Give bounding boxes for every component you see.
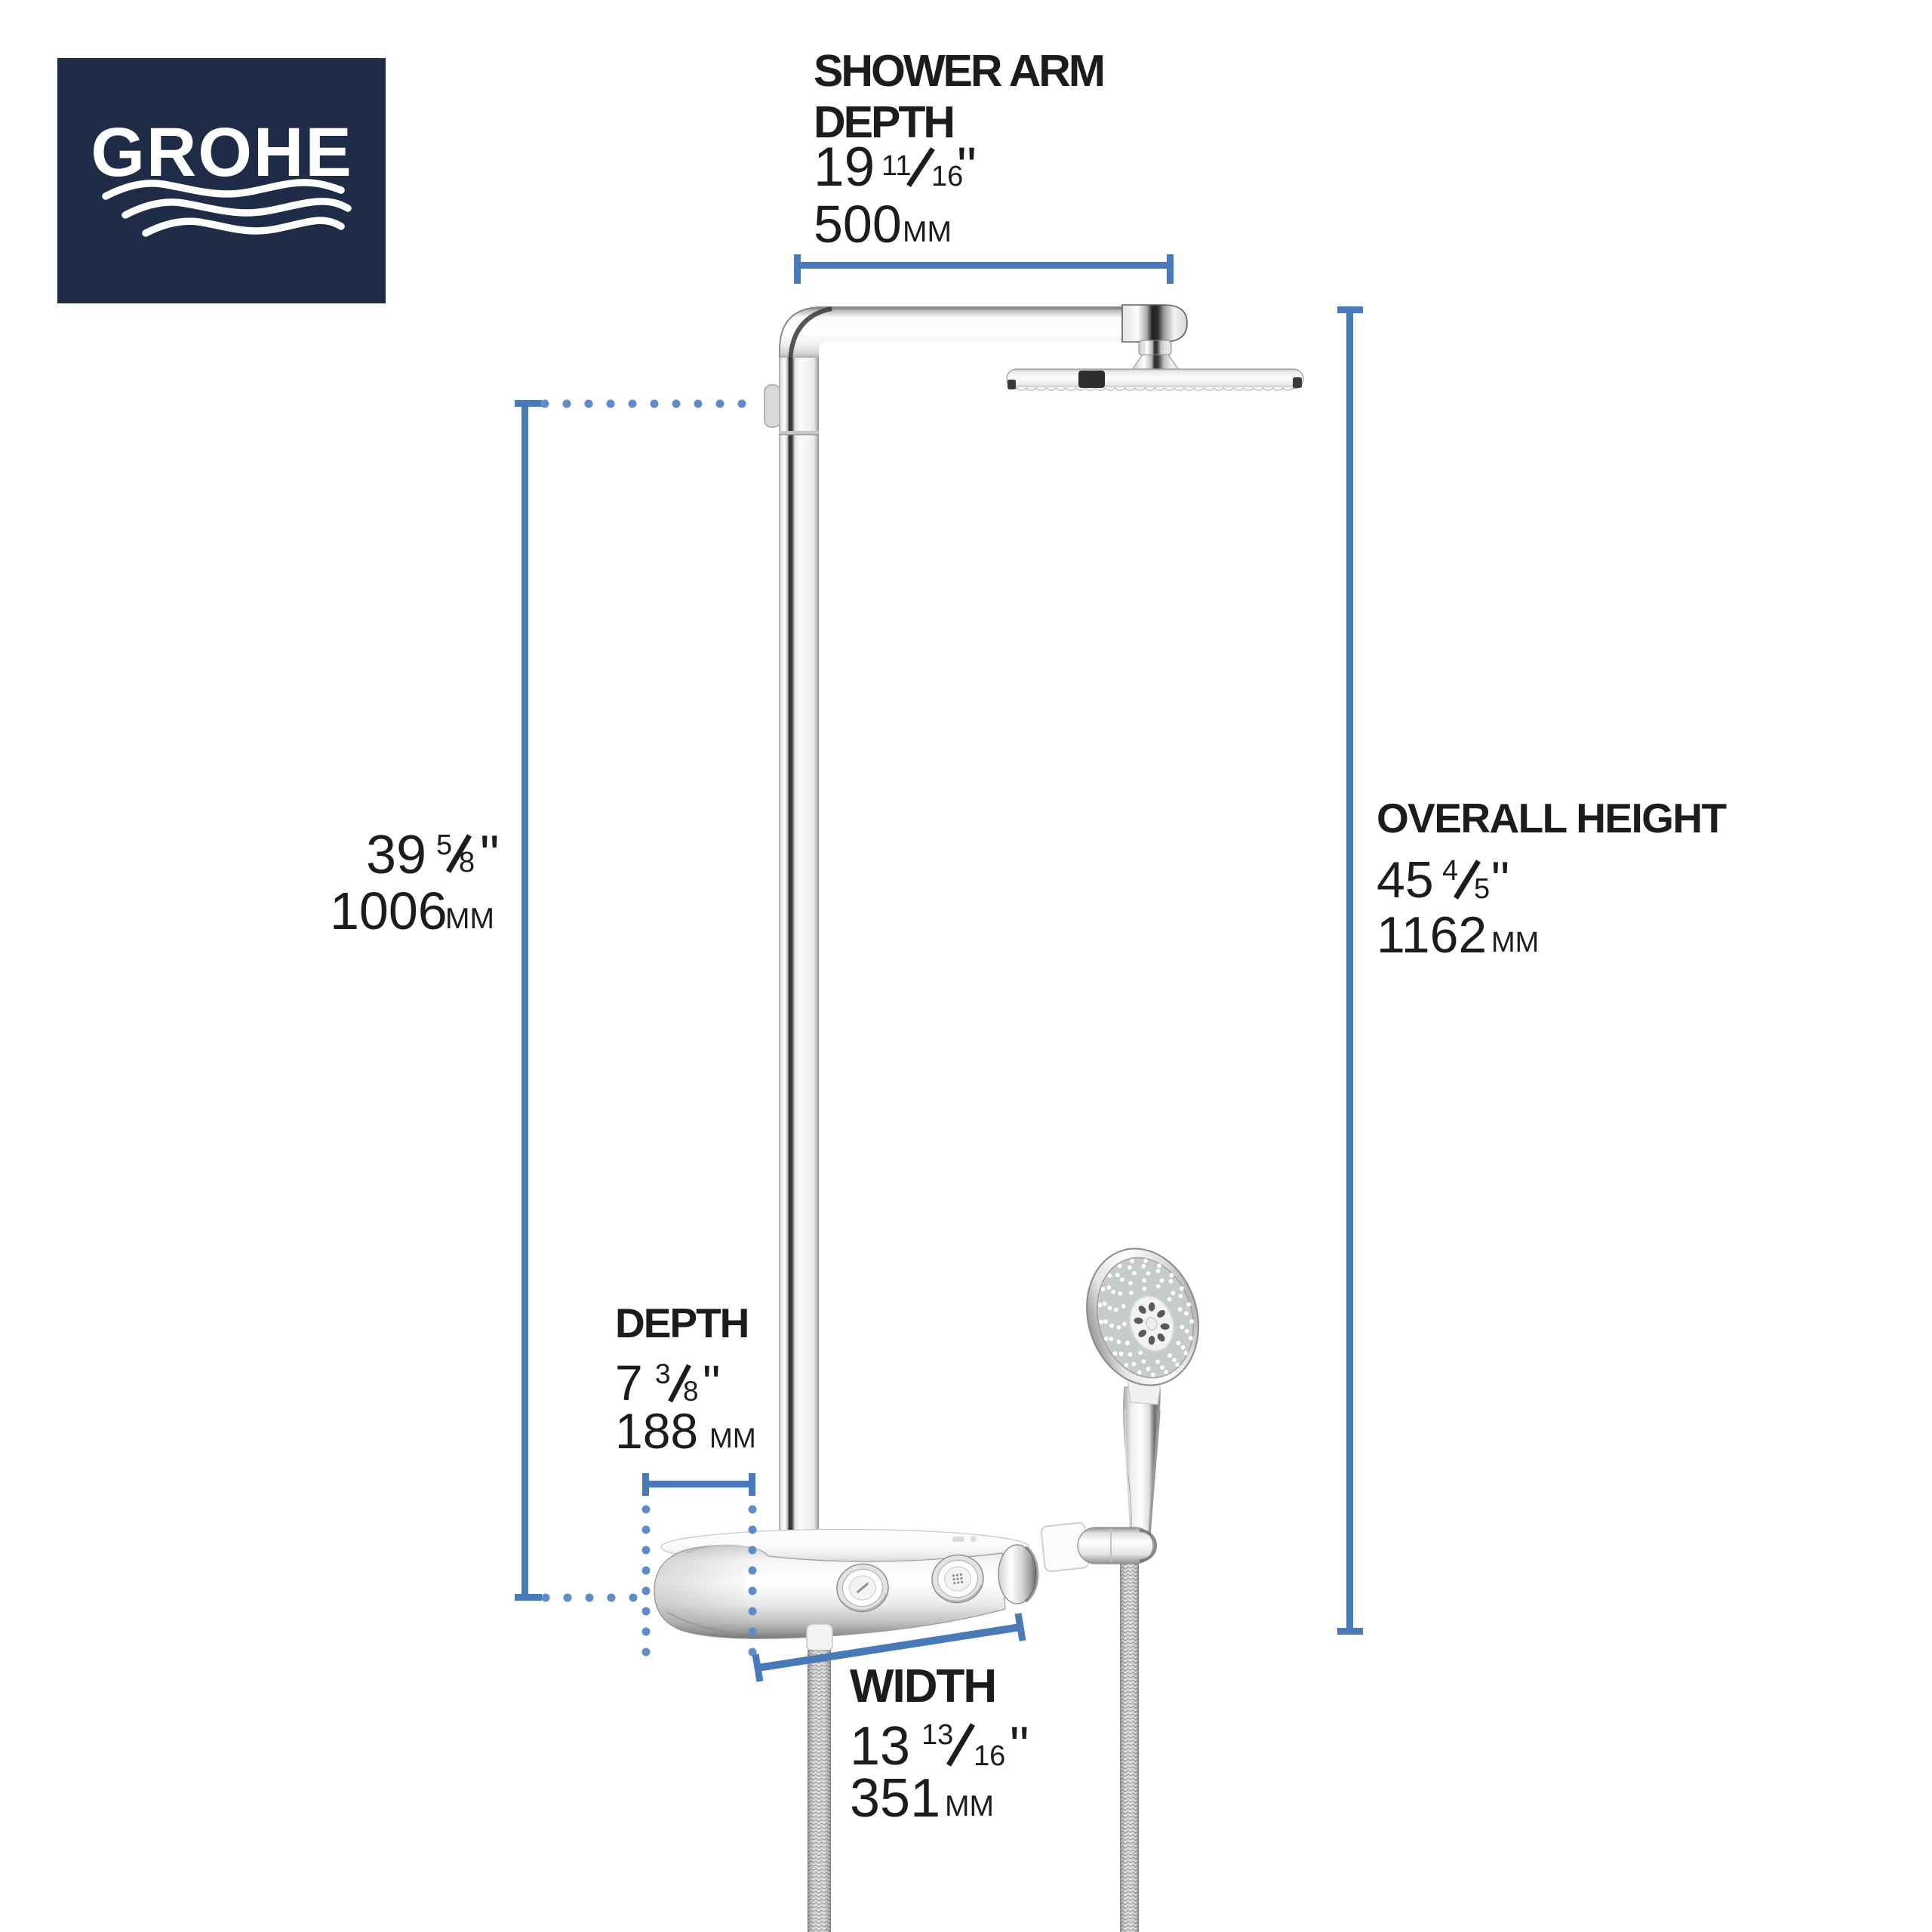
svg-text:MM: MM bbox=[1491, 927, 1539, 958]
svg-text:8: 8 bbox=[459, 847, 475, 878]
svg-text:": " bbox=[703, 1355, 720, 1411]
svg-text:": " bbox=[1491, 851, 1509, 909]
svg-text:5: 5 bbox=[1474, 873, 1490, 905]
svg-text:188: 188 bbox=[615, 1403, 698, 1459]
svg-text:7: 7 bbox=[615, 1355, 643, 1411]
svg-text:8: 8 bbox=[683, 1376, 699, 1407]
svg-text:OVERALL HEIGHT: OVERALL HEIGHT bbox=[1377, 795, 1726, 841]
svg-text:WIDTH: WIDTH bbox=[850, 1660, 995, 1712]
svg-text:16: 16 bbox=[974, 1740, 1005, 1772]
svg-text:": " bbox=[1010, 1716, 1029, 1777]
svg-text:39: 39 bbox=[366, 825, 426, 885]
svg-text:351: 351 bbox=[850, 1768, 940, 1829]
svg-text:MM: MM bbox=[709, 1423, 756, 1454]
svg-text:MM: MM bbox=[945, 1790, 994, 1823]
svg-text:DEPTH: DEPTH bbox=[615, 1300, 748, 1346]
svg-text:500: 500 bbox=[814, 195, 902, 254]
svg-text:GROHE: GROHE bbox=[91, 114, 352, 191]
svg-text:13: 13 bbox=[921, 1719, 953, 1751]
svg-text:11: 11 bbox=[881, 150, 911, 182]
svg-text:45: 45 bbox=[1377, 851, 1434, 909]
svg-text:3: 3 bbox=[655, 1358, 671, 1389]
svg-text:SHOWER ARM: SHOWER ARM bbox=[814, 46, 1103, 96]
svg-text:1006: 1006 bbox=[330, 881, 448, 940]
svg-text:4: 4 bbox=[1442, 855, 1458, 887]
svg-text:19: 19 bbox=[814, 137, 875, 198]
svg-text:1162: 1162 bbox=[1377, 906, 1487, 964]
svg-text:MM: MM bbox=[445, 903, 494, 935]
svg-text:5: 5 bbox=[436, 829, 452, 861]
svg-text:": " bbox=[957, 137, 977, 198]
svg-text:MM: MM bbox=[903, 216, 952, 248]
svg-text:13: 13 bbox=[850, 1716, 910, 1777]
svg-text:": " bbox=[480, 825, 500, 885]
